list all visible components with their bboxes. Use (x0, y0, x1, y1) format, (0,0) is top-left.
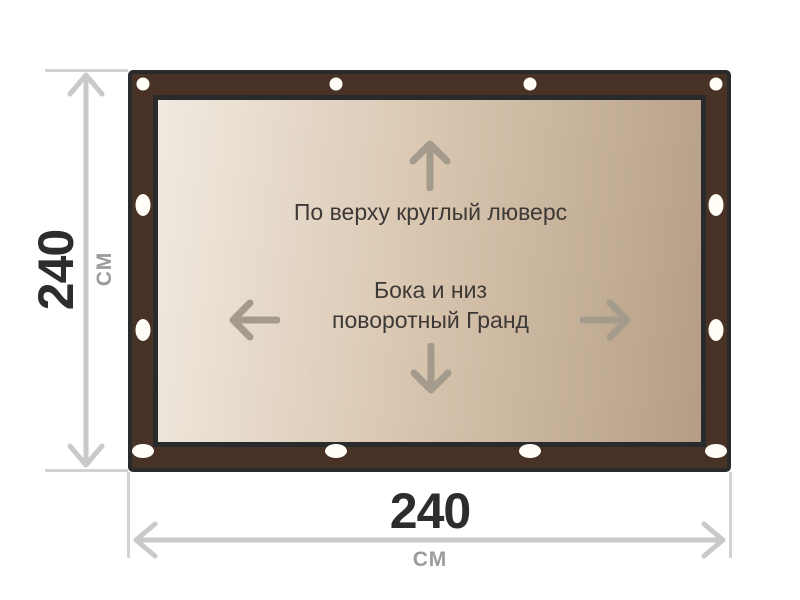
eyelet-oval-h (132, 444, 154, 458)
eyelet-oval-v (136, 194, 151, 216)
eyelet-circle (710, 78, 723, 91)
side-fastening-label-line2: поворотный Гранд (158, 305, 703, 335)
eyelet-oval-v (709, 319, 724, 341)
banner-frame (128, 70, 731, 472)
eyelet-oval-v (136, 319, 151, 341)
eyelet-oval-h (519, 444, 541, 458)
eyelet-oval-v (709, 194, 724, 216)
side-fastening-label-line1: Бока и низ (158, 275, 703, 305)
height-unit: см (93, 252, 117, 286)
eyelet-circle (137, 78, 150, 91)
arrow-up-icon (408, 137, 452, 191)
top-fastening-label: По верху круглый люверс (158, 199, 703, 226)
eyelet-circle (330, 78, 343, 91)
eyelet-circle (524, 78, 537, 91)
side-fastening-label: Бока и низ поворотный Гранд (158, 275, 703, 335)
eyelet-oval-h (325, 444, 347, 458)
width-value: 240 (390, 482, 470, 540)
arrow-down-icon (409, 343, 453, 397)
banner-dimension-diagram: По верху круглый люверс Бока и низ повор… (0, 0, 800, 600)
eyelet-oval-h (705, 444, 727, 458)
height-value: 240 (27, 230, 85, 310)
width-unit: см (413, 548, 447, 572)
